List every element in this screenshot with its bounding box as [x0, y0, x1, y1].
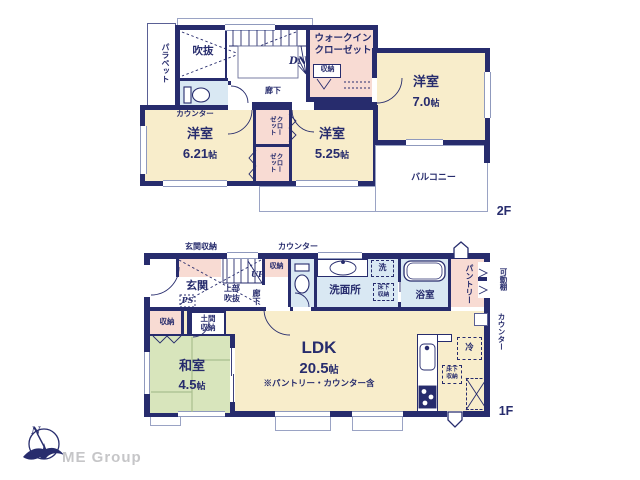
wall	[176, 259, 179, 277]
compass-icon: N	[23, 426, 64, 460]
opening	[451, 307, 484, 311]
tatami-storage-label: 収納	[151, 317, 183, 326]
window	[227, 252, 258, 259]
window	[178, 411, 225, 417]
floor1-label: 1F	[492, 404, 520, 419]
window	[484, 72, 491, 118]
washitsu-size: 4.5帖	[163, 377, 221, 393]
window	[406, 139, 443, 146]
underfloor-hatch-box	[466, 378, 487, 410]
balcony-west	[259, 186, 376, 212]
balcony-label: バルコニー	[406, 172, 461, 183]
window	[318, 252, 362, 259]
stairs-dn-label: DN	[287, 56, 309, 68]
counter-right-label: カウンター	[493, 310, 505, 354]
stairs-up-label: UP	[249, 270, 266, 280]
window	[144, 352, 150, 394]
washer-label: 洗	[374, 263, 391, 273]
bedroom1-name: 洋室	[168, 126, 232, 142]
movable-shelf-label: 可動棚	[495, 265, 507, 293]
counter-top-label: カウンター	[277, 242, 319, 252]
company-logo-text: ME Group	[62, 449, 152, 467]
window	[140, 126, 147, 174]
ldk-note: ※パントリー・カウンター含	[255, 378, 383, 388]
floor2-label: 2F	[490, 204, 518, 219]
doma-storage-label: 土間 収納	[191, 314, 225, 333]
door-gap	[266, 307, 290, 311]
door-gap	[228, 102, 252, 110]
hall-storage-label: 収納	[265, 263, 288, 271]
step-box	[150, 417, 181, 426]
fridge-label: 冷	[461, 342, 478, 352]
shelf-stub	[478, 277, 487, 281]
front-door-gap	[144, 265, 150, 297]
bedroom1-size: 6.21帖	[168, 146, 232, 162]
vanity-counter	[317, 259, 368, 277]
entrance-storage-label: 玄関収納	[178, 242, 224, 252]
counter-2f-label: カウンター	[174, 109, 216, 118]
bathroom-label: 浴室	[413, 290, 437, 301]
ldk-size: 20.5帖	[283, 360, 355, 378]
hallway-1f-label: 廊下	[249, 287, 260, 306]
door-gap	[372, 78, 377, 102]
door-gap	[292, 102, 314, 110]
closet-upper-label: クローゼット	[265, 114, 281, 138]
toilet-room-1f	[291, 259, 314, 308]
counter-notch	[474, 313, 488, 326]
bedroom3-size: 7.0帖	[394, 94, 458, 110]
window	[296, 180, 358, 187]
wall	[306, 97, 378, 103]
terrace-step	[352, 417, 403, 431]
kitchen-island	[417, 334, 438, 412]
entrance-storage-closet	[178, 259, 221, 277]
window	[163, 180, 227, 187]
wall-stub	[484, 145, 490, 163]
pantry-label: パントリー	[460, 262, 473, 306]
wall	[289, 107, 292, 184]
underfloor-kitchen-label: 床下 収納	[443, 367, 461, 381]
washitsu-name: 和室	[163, 358, 221, 374]
bedroom2-size: 5.25帖	[300, 146, 364, 162]
toilet-room-2f	[180, 81, 228, 107]
compass-bird	[23, 443, 64, 460]
washroom-label: 洗面所	[324, 284, 366, 297]
terrace-step	[275, 417, 331, 431]
wic-storage-label: 収納	[315, 66, 340, 74]
bedroom2-name: 洋室	[300, 126, 364, 142]
ldk-name: LDK	[287, 338, 351, 358]
wic-label: ウォークイン クローゼット	[312, 33, 374, 57]
floor-plan: N パラペット 吹抜 DN ウォークイン クローゼット 収納 廊下 カウンター …	[0, 0, 640, 480]
pipe-space-label: PS	[179, 296, 196, 306]
underfloor-washroom-label: 床下 収納	[374, 285, 393, 299]
parapet-label: パラペット	[156, 35, 169, 91]
void-label: 吹抜	[188, 45, 218, 58]
door-gap	[293, 307, 311, 311]
entrance-label: 玄関	[183, 280, 211, 293]
door-gap	[228, 85, 231, 103]
open-above-label: 上部 吹抜	[220, 284, 244, 304]
japanese-room	[150, 336, 235, 413]
compass-north-label: N	[30, 426, 41, 437]
back-door-gap	[447, 411, 463, 417]
hallway-2f-label: 廊下	[262, 86, 284, 96]
bedroom3-name: 洋室	[394, 74, 458, 90]
window	[225, 24, 275, 31]
closet-lower-label: クローゼット	[265, 151, 281, 175]
sliding-door-gap	[230, 348, 235, 402]
wall	[225, 31, 227, 78]
